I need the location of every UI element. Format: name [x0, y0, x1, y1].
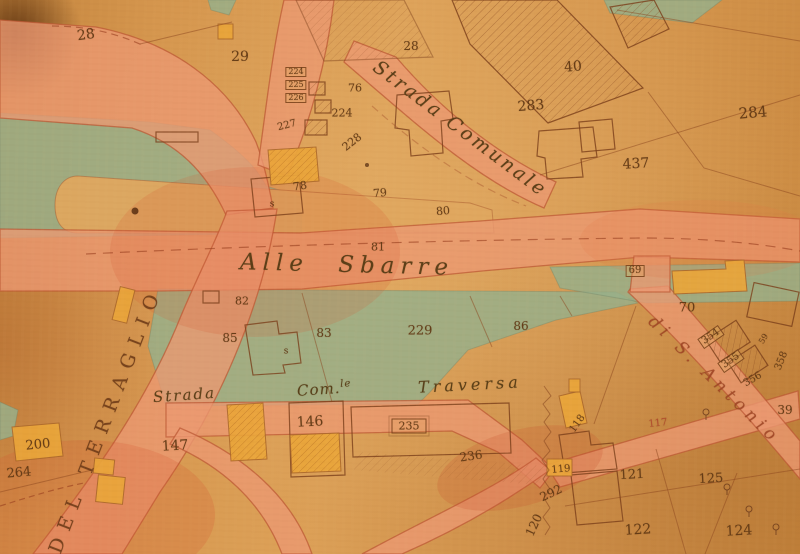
historical-cadastral-map: Alle Sbarre Strada Comunale DEL TERRAGLI… [0, 0, 800, 554]
map-graphics [0, 0, 800, 554]
